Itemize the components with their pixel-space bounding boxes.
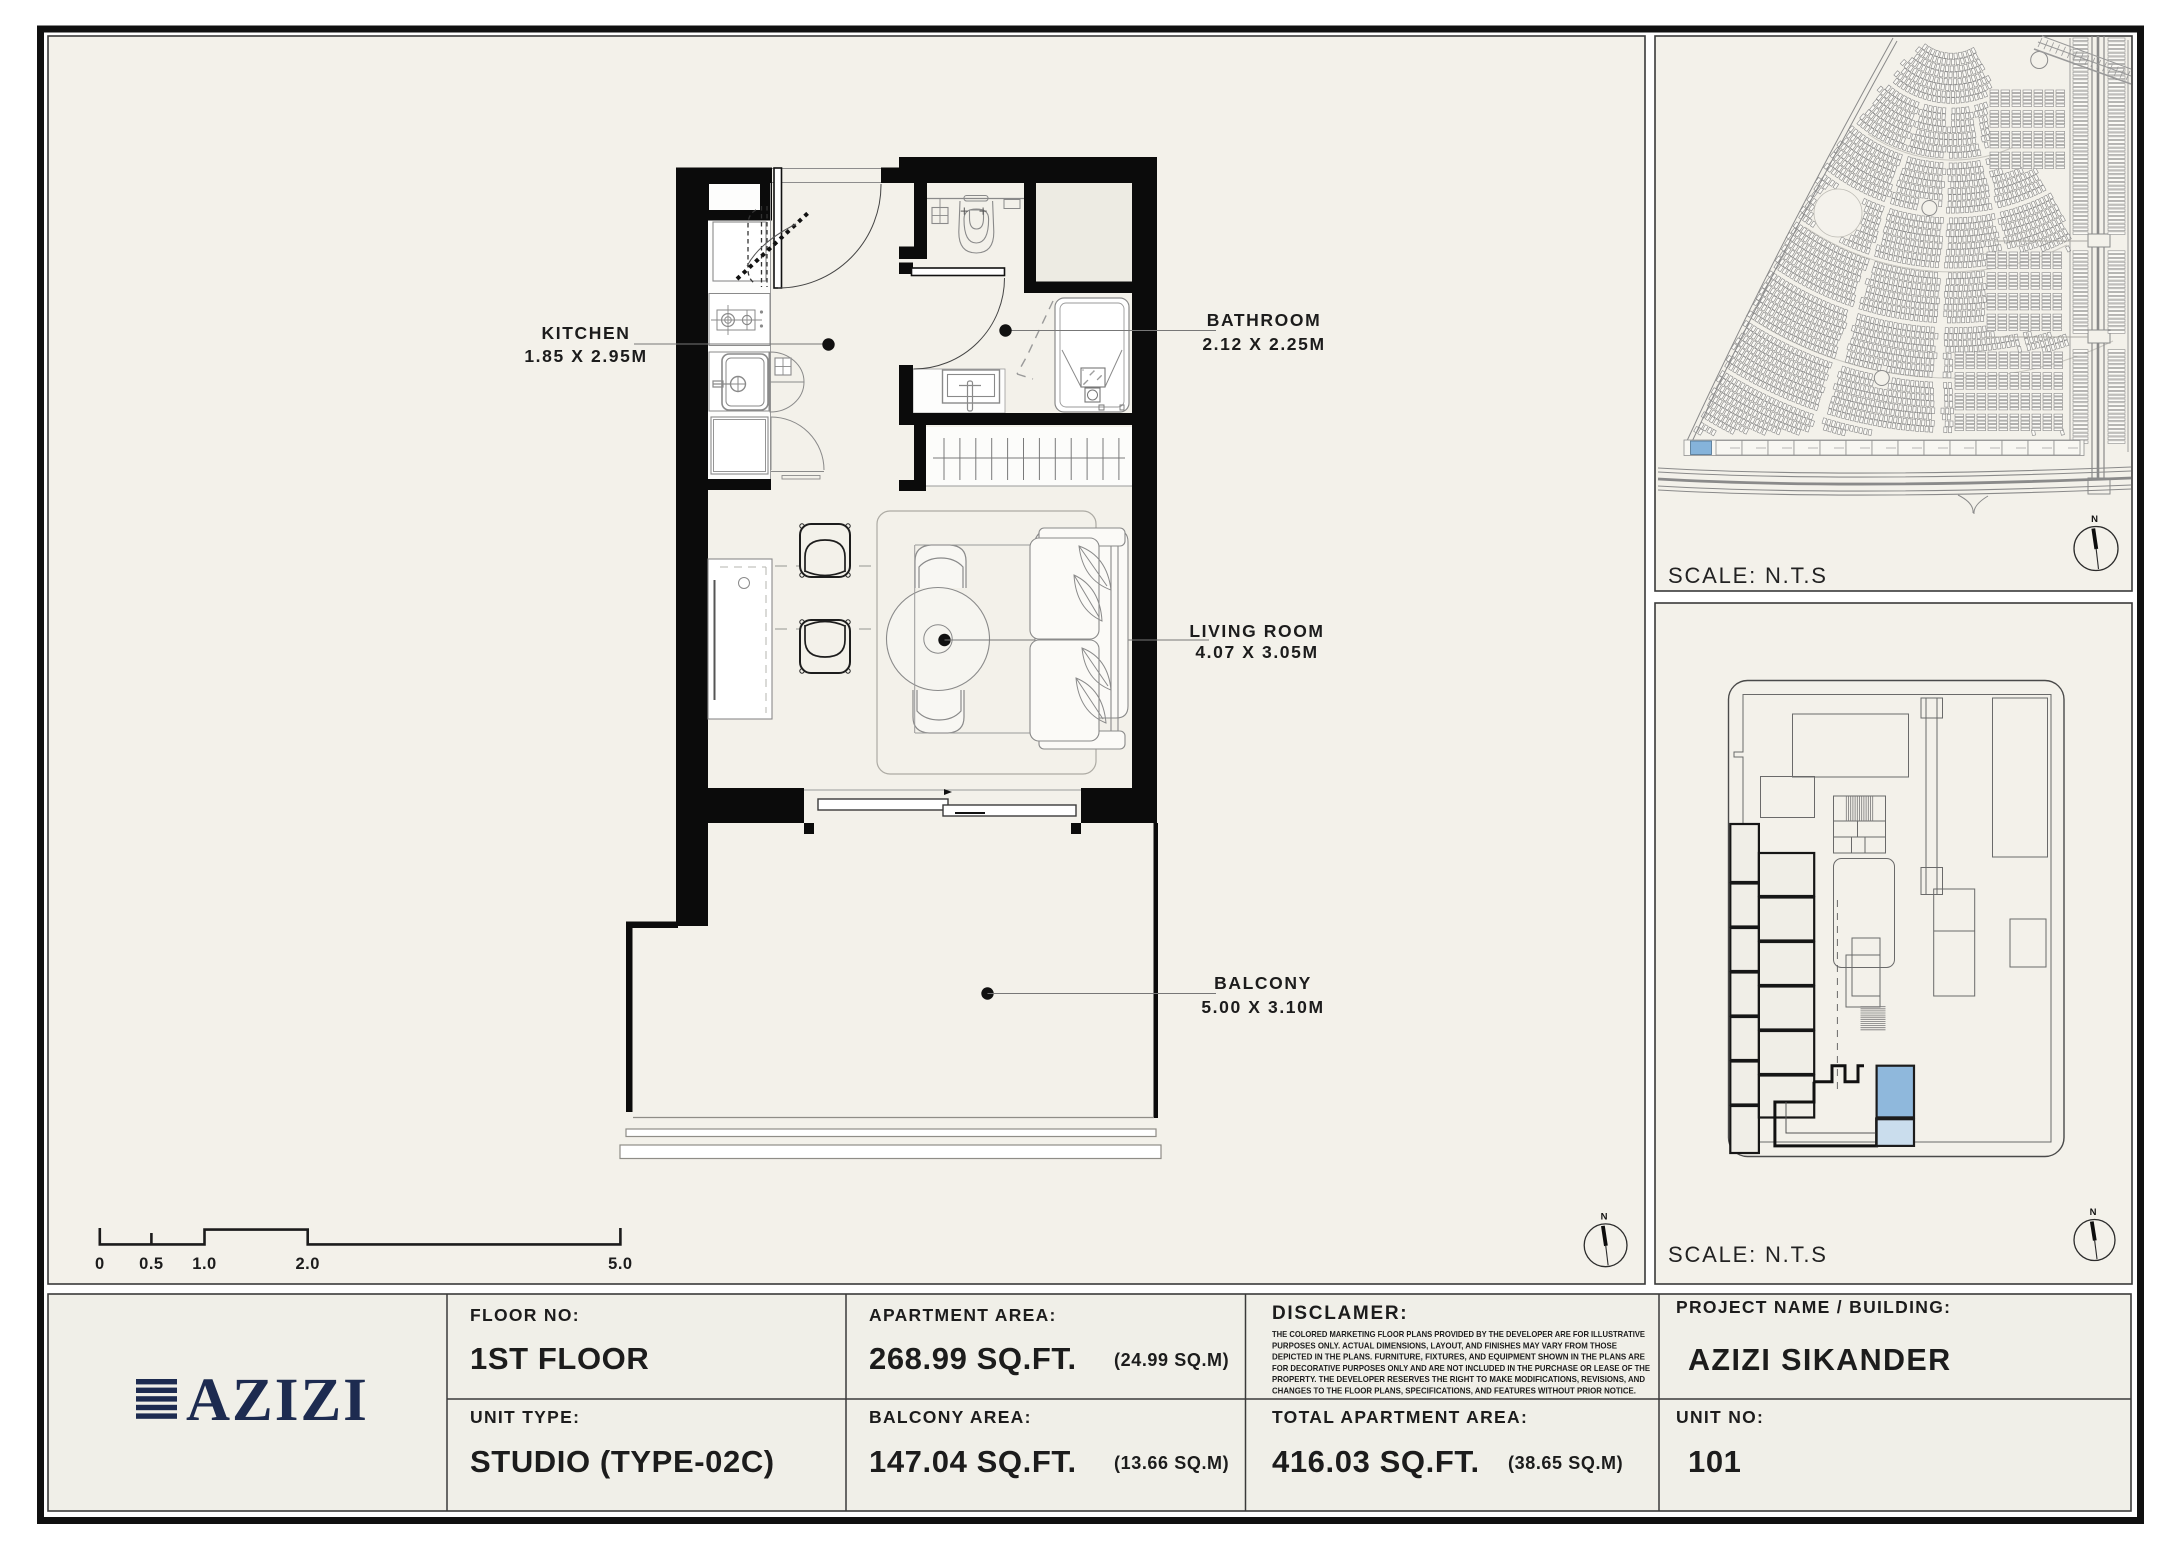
- svg-text:5.0: 5.0: [608, 1255, 632, 1273]
- svg-text:APARTMENT AREA:: APARTMENT AREA:: [869, 1305, 1057, 1325]
- svg-text:416.03 SQ.FT.: 416.03 SQ.FT.: [1272, 1444, 1480, 1479]
- svg-text:UNIT TYPE:: UNIT TYPE:: [470, 1407, 580, 1427]
- svg-text:2.0: 2.0: [295, 1255, 319, 1273]
- svg-text:4.07 X 3.05M: 4.07 X 3.05M: [1195, 642, 1318, 662]
- svg-text:N: N: [2091, 514, 2098, 525]
- svg-text:1ST FLOOR: 1ST FLOOR: [470, 1341, 649, 1376]
- svg-text:0: 0: [95, 1255, 105, 1273]
- svg-text:(24.99 SQ.M): (24.99 SQ.M): [1114, 1350, 1229, 1370]
- svg-text:5.00 X 3.10M: 5.00 X 3.10M: [1201, 997, 1324, 1017]
- svg-text:BALCONY AREA:: BALCONY AREA:: [869, 1407, 1032, 1427]
- svg-text:147.04 SQ.FT.: 147.04 SQ.FT.: [869, 1444, 1077, 1479]
- svg-text:(38.65 SQ.M): (38.65 SQ.M): [1508, 1453, 1623, 1473]
- svg-text:FOR DECORATIVE PURPOSES ONLY A: FOR DECORATIVE PURPOSES ONLY AND ARE NOT…: [1272, 1363, 1650, 1373]
- svg-text:0.5: 0.5: [139, 1255, 163, 1273]
- svg-text:FLOOR NO:: FLOOR NO:: [470, 1305, 580, 1325]
- svg-text:101: 101: [1688, 1444, 1742, 1479]
- svg-text:STUDIO (TYPE-02C): STUDIO (TYPE-02C): [470, 1444, 775, 1479]
- svg-text:SCALE: N.T.S: SCALE: N.T.S: [1668, 563, 1828, 588]
- svg-text:KITCHEN: KITCHEN: [542, 323, 631, 343]
- svg-text:PURPOSES ONLY. ACTUAL DIMENSIO: PURPOSES ONLY. ACTUAL DIMENSIONS, LAYOUT…: [1272, 1340, 1617, 1350]
- svg-text:DISCLAMER:: DISCLAMER:: [1272, 1303, 1408, 1324]
- svg-text:2.12 X 2.25M: 2.12 X 2.25M: [1202, 334, 1325, 354]
- svg-text:TOTAL APARTMENT AREA:: TOTAL APARTMENT AREA:: [1272, 1407, 1528, 1427]
- svg-text:SCALE: N.T.S: SCALE: N.T.S: [1668, 1242, 1828, 1267]
- svg-text:(13.66 SQ.M): (13.66 SQ.M): [1114, 1453, 1229, 1473]
- svg-text:BATHROOM: BATHROOM: [1207, 310, 1322, 330]
- svg-text:1.85 X 2.95M: 1.85 X 2.95M: [524, 346, 647, 366]
- svg-text:N: N: [1601, 1211, 1608, 1222]
- svg-text:PROPERTY. THE DEVELOPER RESERV: PROPERTY. THE DEVELOPER RESERVES THE RIG…: [1272, 1374, 1645, 1384]
- svg-text:CHANGES TO THE FLOOR PLANS, SP: CHANGES TO THE FLOOR PLANS, SPECIFICATIO…: [1272, 1386, 1636, 1396]
- svg-text:N: N: [2090, 1207, 2097, 1218]
- svg-text:AZIZI: AZIZI: [186, 1367, 369, 1434]
- svg-text:BALCONY: BALCONY: [1214, 973, 1312, 993]
- svg-text:AZIZI SIKANDER: AZIZI SIKANDER: [1688, 1343, 1952, 1377]
- svg-text:UNIT NO:: UNIT NO:: [1676, 1407, 1764, 1427]
- svg-text:268.99 SQ.FT.: 268.99 SQ.FT.: [869, 1341, 1077, 1376]
- svg-text:THE COLORED MARKETING FLOOR PL: THE COLORED MARKETING FLOOR PLANS PROVID…: [1272, 1329, 1645, 1339]
- svg-text:1.0: 1.0: [192, 1255, 216, 1273]
- svg-text:LIVING ROOM: LIVING ROOM: [1189, 621, 1324, 641]
- svg-text:DEPICTED IN THE PLANS. FURNITU: DEPICTED IN THE PLANS. FURNITURE, FIXTUR…: [1272, 1352, 1645, 1362]
- svg-text:PROJECT NAME / BUILDING:: PROJECT NAME / BUILDING:: [1676, 1297, 1951, 1317]
